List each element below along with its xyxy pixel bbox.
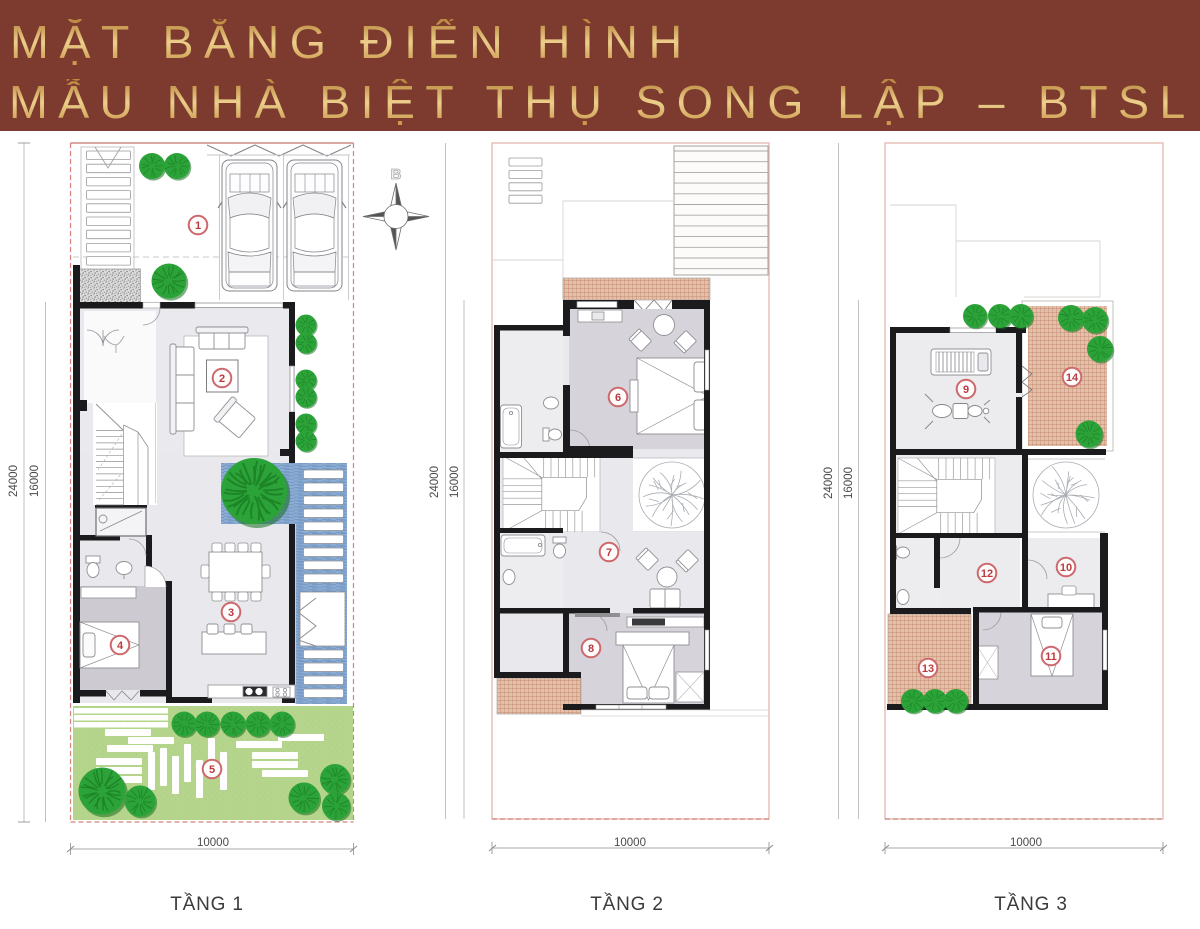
svg-text:24000: 24000 xyxy=(429,466,441,498)
svg-text:TẦNG 1: TẦNG 1 xyxy=(170,893,243,915)
svg-text:14: 14 xyxy=(1066,372,1079,384)
svg-text:16000: 16000 xyxy=(449,466,461,498)
svg-text:2: 2 xyxy=(219,373,225,385)
svg-text:10000: 10000 xyxy=(197,837,229,849)
svg-text:24000: 24000 xyxy=(823,467,835,499)
svg-text:8: 8 xyxy=(588,643,594,655)
svg-text:24000: 24000 xyxy=(8,465,20,497)
svg-text:16000: 16000 xyxy=(843,467,855,499)
svg-text:4: 4 xyxy=(117,640,124,652)
svg-text:10000: 10000 xyxy=(1010,837,1042,849)
svg-text:10: 10 xyxy=(1060,562,1072,574)
svg-text:16000: 16000 xyxy=(29,465,41,497)
svg-text:5: 5 xyxy=(209,764,215,776)
svg-text:11: 11 xyxy=(1045,651,1057,663)
svg-text:TẦNG 2: TẦNG 2 xyxy=(590,893,663,915)
svg-text:TẦNG 3: TẦNG 3 xyxy=(994,893,1067,915)
svg-text:9: 9 xyxy=(963,384,969,396)
svg-text:3: 3 xyxy=(228,607,234,619)
svg-text:13: 13 xyxy=(922,663,934,675)
svg-text:7: 7 xyxy=(606,547,612,559)
svg-text:12: 12 xyxy=(981,568,993,580)
svg-text:6: 6 xyxy=(615,392,621,404)
svg-text:B: B xyxy=(391,166,402,183)
svg-text:10000: 10000 xyxy=(614,837,646,849)
svg-text:1: 1 xyxy=(195,220,201,232)
